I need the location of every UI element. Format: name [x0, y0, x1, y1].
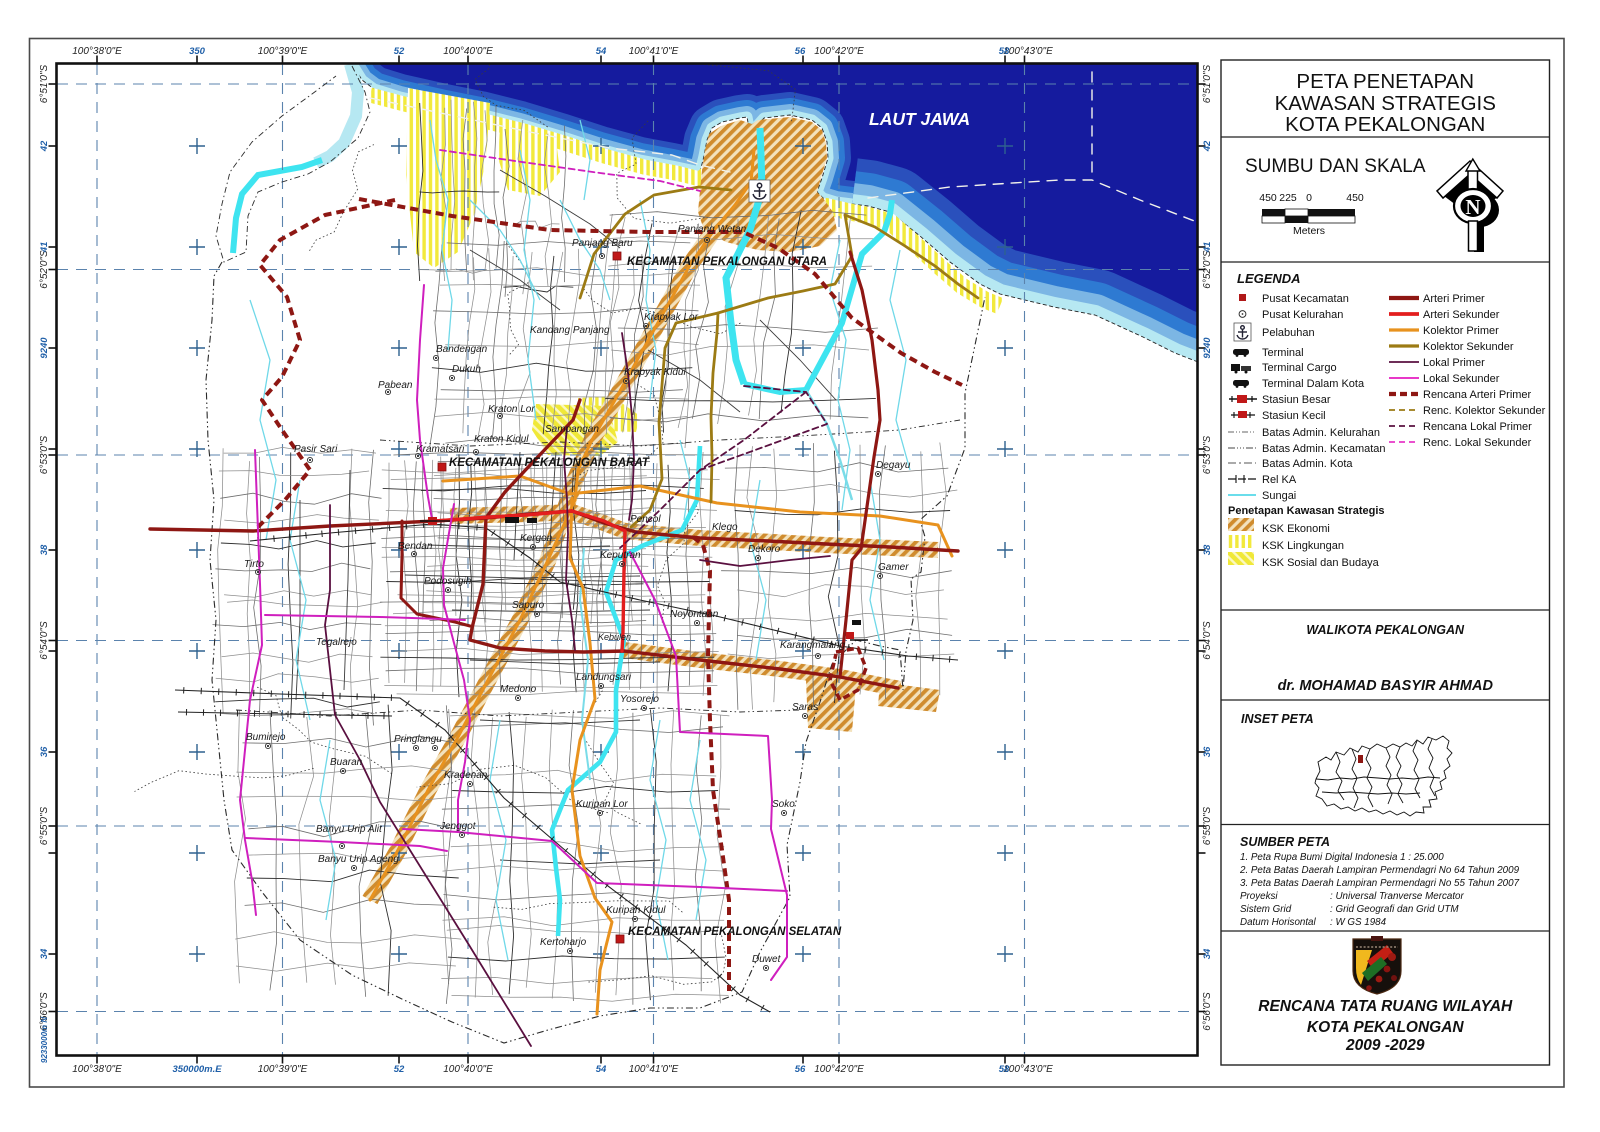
- svg-text:9240: 9240: [39, 337, 50, 359]
- svg-text:Krapyak Lor: Krapyak Lor: [644, 312, 699, 323]
- svg-text:Kraton Lor: Kraton Lor: [488, 404, 535, 415]
- svg-text:Kergon: Kergon: [520, 533, 553, 544]
- svg-text:2009 -2029: 2009 -2029: [1345, 1037, 1425, 1054]
- svg-text:Banyu Urip Alit: Banyu Urip Alit: [316, 824, 383, 835]
- svg-text:1. Peta Rupa Bumi Digital Indo: 1. Peta Rupa Bumi Digital Indonesia 1 : …: [1240, 852, 1444, 863]
- svg-text:: Universal Tranverse Mercator: : Universal Tranverse Mercator: [1330, 891, 1464, 902]
- svg-text:Batas Admin. Kota: Batas Admin. Kota: [1262, 458, 1353, 470]
- svg-text:6°54'0"S: 6°54'0"S: [39, 621, 50, 660]
- svg-text:Duwet: Duwet: [752, 954, 782, 965]
- svg-text:3. Peta Batas Daerah Lampiran: 3. Peta Batas Daerah Lampiran Permendagr…: [1240, 878, 1520, 889]
- svg-text:Kuripan Lor: Kuripan Lor: [576, 799, 628, 810]
- svg-text:Lokal Sekunder: Lokal Sekunder: [1423, 373, 1500, 385]
- svg-text:Batas Admin. Kecamatan: Batas Admin. Kecamatan: [1262, 443, 1386, 455]
- svg-text:KECAMATAN PEKALONGAN BARAT: KECAMATAN PEKALONGAN BARAT: [449, 457, 650, 469]
- svg-text:Proyeksi: Proyeksi: [1240, 891, 1278, 902]
- svg-text:Yosorejo: Yosorejo: [620, 694, 659, 705]
- svg-text:6°52'0"S: 6°52'0"S: [39, 250, 50, 289]
- svg-text:Kraton Kidul: Kraton Kidul: [474, 434, 529, 445]
- svg-text:Kuripan Kidul: Kuripan Kidul: [606, 905, 666, 916]
- svg-text:: Grid Geografi dan Grid UTM: : Grid Geografi dan Grid UTM: [1330, 904, 1459, 915]
- svg-text:Pabean: Pabean: [378, 380, 413, 391]
- svg-text:INSET PETA: INSET PETA: [1241, 712, 1314, 726]
- svg-text:LAUT JAWA: LAUT JAWA: [869, 109, 970, 129]
- svg-text:41: 41: [1202, 242, 1213, 254]
- svg-text:6°55'0"S: 6°55'0"S: [1202, 806, 1213, 845]
- svg-text:42: 42: [1202, 140, 1213, 152]
- svg-text:36: 36: [1202, 746, 1213, 757]
- svg-text:41: 41: [39, 242, 50, 254]
- svg-text:Saras: Saras: [792, 702, 818, 713]
- svg-text:Dekoro: Dekoro: [748, 544, 781, 555]
- svg-text:6°53'0"S: 6°53'0"S: [39, 435, 50, 474]
- svg-text:PETA PENETAPAN: PETA PENETAPAN: [1296, 70, 1474, 93]
- svg-text:Bumirejo: Bumirejo: [246, 732, 286, 743]
- svg-text:6°51'0"S: 6°51'0"S: [39, 64, 50, 103]
- svg-text:Landungsari: Landungsari: [576, 672, 632, 683]
- svg-text:Rencana Arteri Primer: Rencana Arteri Primer: [1423, 389, 1532, 401]
- svg-text:Kradenan: Kradenan: [444, 770, 488, 781]
- svg-text:KSK Ekonomi: KSK Ekonomi: [1262, 523, 1330, 535]
- svg-text:Gamer: Gamer: [878, 562, 909, 573]
- svg-text:100°39'0"E: 100°39'0"E: [258, 46, 308, 57]
- svg-text:Dukuh: Dukuh: [452, 364, 481, 375]
- svg-text:N: N: [1465, 195, 1480, 219]
- svg-text:Jenggot: Jenggot: [439, 821, 477, 832]
- svg-text:100°42'0"E: 100°42'0"E: [814, 1064, 864, 1075]
- svg-text:450: 450: [1346, 192, 1364, 204]
- svg-text:6°54'0"S: 6°54'0"S: [1202, 621, 1213, 660]
- svg-text:38: 38: [1202, 544, 1213, 555]
- svg-text:225: 225: [1279, 192, 1297, 204]
- svg-text:6°56'0"S: 6°56'0"S: [1202, 992, 1213, 1031]
- svg-text:58: 58: [999, 1064, 1010, 1075]
- svg-text:Bandengan: Bandengan: [436, 344, 488, 355]
- svg-text:: W GS 1984: : W GS 1984: [1330, 917, 1387, 928]
- svg-text:Penetapan Kawasan Strategis: Penetapan Kawasan Strategis: [1228, 505, 1385, 517]
- svg-text:Noyontaan: Noyontaan: [670, 609, 719, 620]
- svg-text:54: 54: [596, 46, 607, 57]
- svg-text:2. Peta Batas Daerah Lampiran: 2. Peta Batas Daerah Lampiran Permendagr…: [1239, 865, 1520, 876]
- svg-text:58: 58: [999, 46, 1010, 57]
- svg-text:LEGENDA: LEGENDA: [1237, 271, 1301, 286]
- svg-text:100°43'0"E: 100°43'0"E: [1003, 46, 1053, 57]
- svg-text:RENCANA TATA RUANG WILAYAH: RENCANA TATA RUANG WILAYAH: [1258, 998, 1513, 1015]
- svg-text:6°53'0"S: 6°53'0"S: [1202, 435, 1213, 474]
- svg-text:KECAMATAN PEKALONGAN SELATAN: KECAMATAN PEKALONGAN SELATAN: [628, 926, 842, 938]
- svg-text:Arteri Primer: Arteri Primer: [1423, 293, 1485, 305]
- svg-text:Kolektor Primer: Kolektor Primer: [1423, 325, 1499, 337]
- svg-text:Terminal: Terminal: [1262, 347, 1304, 359]
- svg-text:Soko: Soko: [772, 799, 795, 810]
- svg-text:36: 36: [39, 746, 50, 757]
- svg-text:100°41'0"E: 100°41'0"E: [629, 46, 679, 57]
- svg-text:100°38'0"E: 100°38'0"E: [72, 46, 122, 57]
- svg-text:56: 56: [795, 46, 806, 57]
- svg-text:Kertoharjo: Kertoharjo: [540, 937, 587, 948]
- svg-text:Medono: Medono: [500, 684, 537, 695]
- svg-text:34: 34: [1202, 948, 1213, 959]
- svg-text:Rel KA: Rel KA: [1262, 474, 1297, 486]
- svg-text:Panjang Baru: Panjang Baru: [572, 238, 633, 249]
- svg-text:0: 0: [1306, 192, 1312, 204]
- svg-text:350: 350: [189, 46, 206, 57]
- svg-text:Stasiun Besar: Stasiun Besar: [1262, 394, 1331, 406]
- svg-text:Tegalrejo: Tegalrejo: [316, 637, 357, 648]
- svg-text:Terminal Cargo: Terminal Cargo: [1262, 362, 1337, 374]
- svg-text:100°42'0"E: 100°42'0"E: [814, 46, 864, 57]
- svg-text:Krapyak Kidul: Krapyak Kidul: [624, 367, 686, 378]
- svg-text:100°41'0"E: 100°41'0"E: [629, 1064, 679, 1075]
- svg-text:Kandang Panjang: Kandang Panjang: [530, 325, 610, 336]
- svg-text:KAWASAN STRATEGIS: KAWASAN STRATEGIS: [1275, 92, 1496, 115]
- svg-text:Buaran: Buaran: [330, 757, 363, 768]
- svg-text:Sampangan: Sampangan: [545, 424, 599, 435]
- svg-text:38: 38: [39, 544, 50, 555]
- svg-text:100°40'0"E: 100°40'0"E: [443, 46, 493, 57]
- svg-text:dr. MOHAMAD BASYIR AHMAD: dr. MOHAMAD BASYIR AHMAD: [1278, 678, 1494, 694]
- svg-text:Pasir Sari: Pasir Sari: [294, 444, 338, 455]
- svg-text:SUMBU DAN SKALA: SUMBU DAN SKALA: [1245, 156, 1426, 177]
- svg-text:Datum Horisontal: Datum Horisontal: [1240, 917, 1317, 928]
- svg-text:Renc. Kolektor Sekunder: Renc. Kolektor Sekunder: [1423, 405, 1546, 417]
- svg-text:54: 54: [596, 1064, 607, 1075]
- svg-text:Meters: Meters: [1293, 225, 1325, 237]
- svg-text:Bendan: Bendan: [398, 541, 433, 552]
- svg-text:Klego: Klego: [712, 522, 738, 533]
- svg-text:Degayu: Degayu: [876, 460, 911, 471]
- svg-text:56: 56: [795, 1064, 806, 1075]
- svg-text:9233000m N: 9233000m N: [40, 1017, 49, 1063]
- svg-text:Rencana Lokal Primer: Rencana Lokal Primer: [1423, 421, 1532, 433]
- svg-text:Kolektor Sekunder: Kolektor Sekunder: [1423, 341, 1514, 353]
- svg-text:Pringlangu: Pringlangu: [394, 734, 442, 745]
- svg-text:Karangmalang: Karangmalang: [780, 640, 845, 651]
- svg-text:350000m.E: 350000m.E: [172, 1064, 222, 1075]
- svg-text:Pusat Kecamatan: Pusat Kecamatan: [1262, 293, 1349, 305]
- svg-text:WALIKOTA PEKALONGAN: WALIKOTA PEKALONGAN: [1306, 623, 1465, 637]
- svg-text:6°51'0"S: 6°51'0"S: [1202, 64, 1213, 103]
- svg-text:100°43'0"E: 100°43'0"E: [1003, 1064, 1053, 1075]
- svg-text:42: 42: [39, 140, 50, 152]
- svg-text:100°40'0"E: 100°40'0"E: [443, 1064, 493, 1075]
- svg-text:6°55'0"S: 6°55'0"S: [39, 806, 50, 845]
- svg-text:KSK Lingkungan: KSK Lingkungan: [1262, 540, 1344, 552]
- svg-text:9240: 9240: [1202, 337, 1213, 359]
- svg-text:Panjang Wetan: Panjang Wetan: [678, 224, 747, 235]
- svg-text:Arteri Sekunder: Arteri Sekunder: [1423, 309, 1500, 321]
- svg-text:Sapuro: Sapuro: [512, 600, 545, 611]
- svg-text:Podosugih: Podosugih: [424, 576, 472, 587]
- svg-text:Pusat Kelurahan: Pusat Kelurahan: [1262, 309, 1343, 321]
- svg-text:52: 52: [394, 46, 405, 57]
- svg-text:Sungai: Sungai: [1262, 490, 1296, 502]
- svg-text:Batas Admin. Kelurahan: Batas Admin. Kelurahan: [1262, 427, 1380, 439]
- svg-text:Keputran: Keputran: [600, 550, 641, 561]
- svg-text:Sistem Grid: Sistem Grid: [1240, 904, 1292, 915]
- svg-text:Pencol: Pencol: [630, 514, 661, 525]
- svg-text:Kebulen: Kebulen: [598, 632, 631, 642]
- svg-text:52: 52: [394, 1064, 405, 1075]
- svg-text:34: 34: [39, 948, 50, 959]
- svg-text:6°52'0"S: 6°52'0"S: [1202, 250, 1213, 289]
- svg-text:Renc. Lokal Sekunder: Renc. Lokal Sekunder: [1423, 437, 1532, 449]
- svg-text:KSK Sosial dan Budaya: KSK Sosial dan Budaya: [1262, 557, 1380, 569]
- svg-text:450: 450: [1259, 192, 1277, 204]
- svg-text:Pelabuhan: Pelabuhan: [1262, 327, 1315, 339]
- svg-text:SUMBER PETA: SUMBER PETA: [1240, 835, 1330, 849]
- svg-text:Tirto: Tirto: [244, 559, 264, 570]
- svg-text:Terminal Dalam Kota: Terminal Dalam Kota: [1262, 378, 1365, 390]
- svg-text:KOTA PEKALONGAN: KOTA PEKALONGAN: [1307, 1019, 1465, 1036]
- svg-text:100°39'0"E: 100°39'0"E: [258, 1064, 308, 1075]
- svg-text:KOTA PEKALONGAN: KOTA PEKALONGAN: [1285, 113, 1485, 136]
- svg-text:Stasiun Kecil: Stasiun Kecil: [1262, 410, 1326, 422]
- svg-text:Banyu Urip Ageng: Banyu Urip Ageng: [318, 854, 399, 865]
- svg-text:Kramatsari: Kramatsari: [416, 444, 465, 455]
- svg-text:Lokal Primer: Lokal Primer: [1423, 357, 1485, 369]
- svg-text:100°38'0"E: 100°38'0"E: [72, 1064, 122, 1075]
- svg-text:KECAMATAN PEKALONGAN UTARA: KECAMATAN PEKALONGAN UTARA: [627, 256, 827, 268]
